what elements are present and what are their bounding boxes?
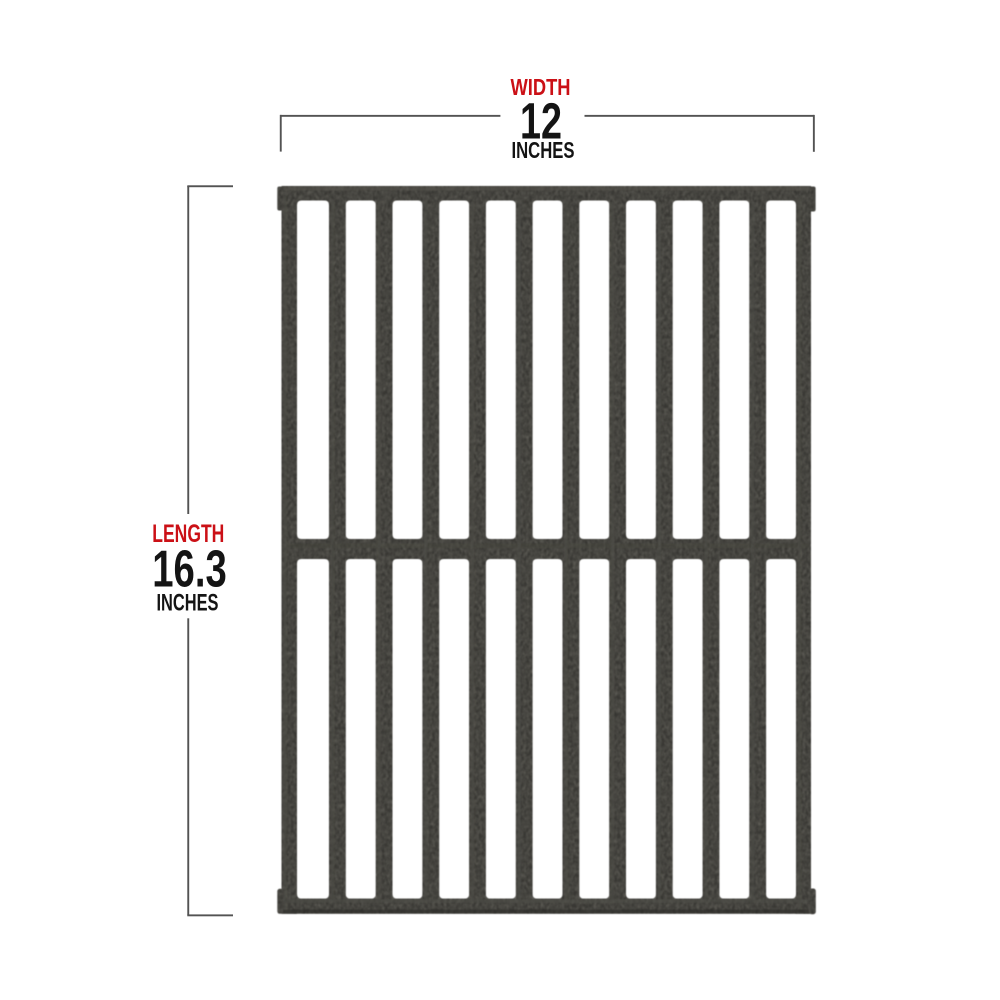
svg-text:INCHES: INCHES	[157, 589, 219, 616]
svg-text:INCHES: INCHES	[512, 137, 575, 163]
